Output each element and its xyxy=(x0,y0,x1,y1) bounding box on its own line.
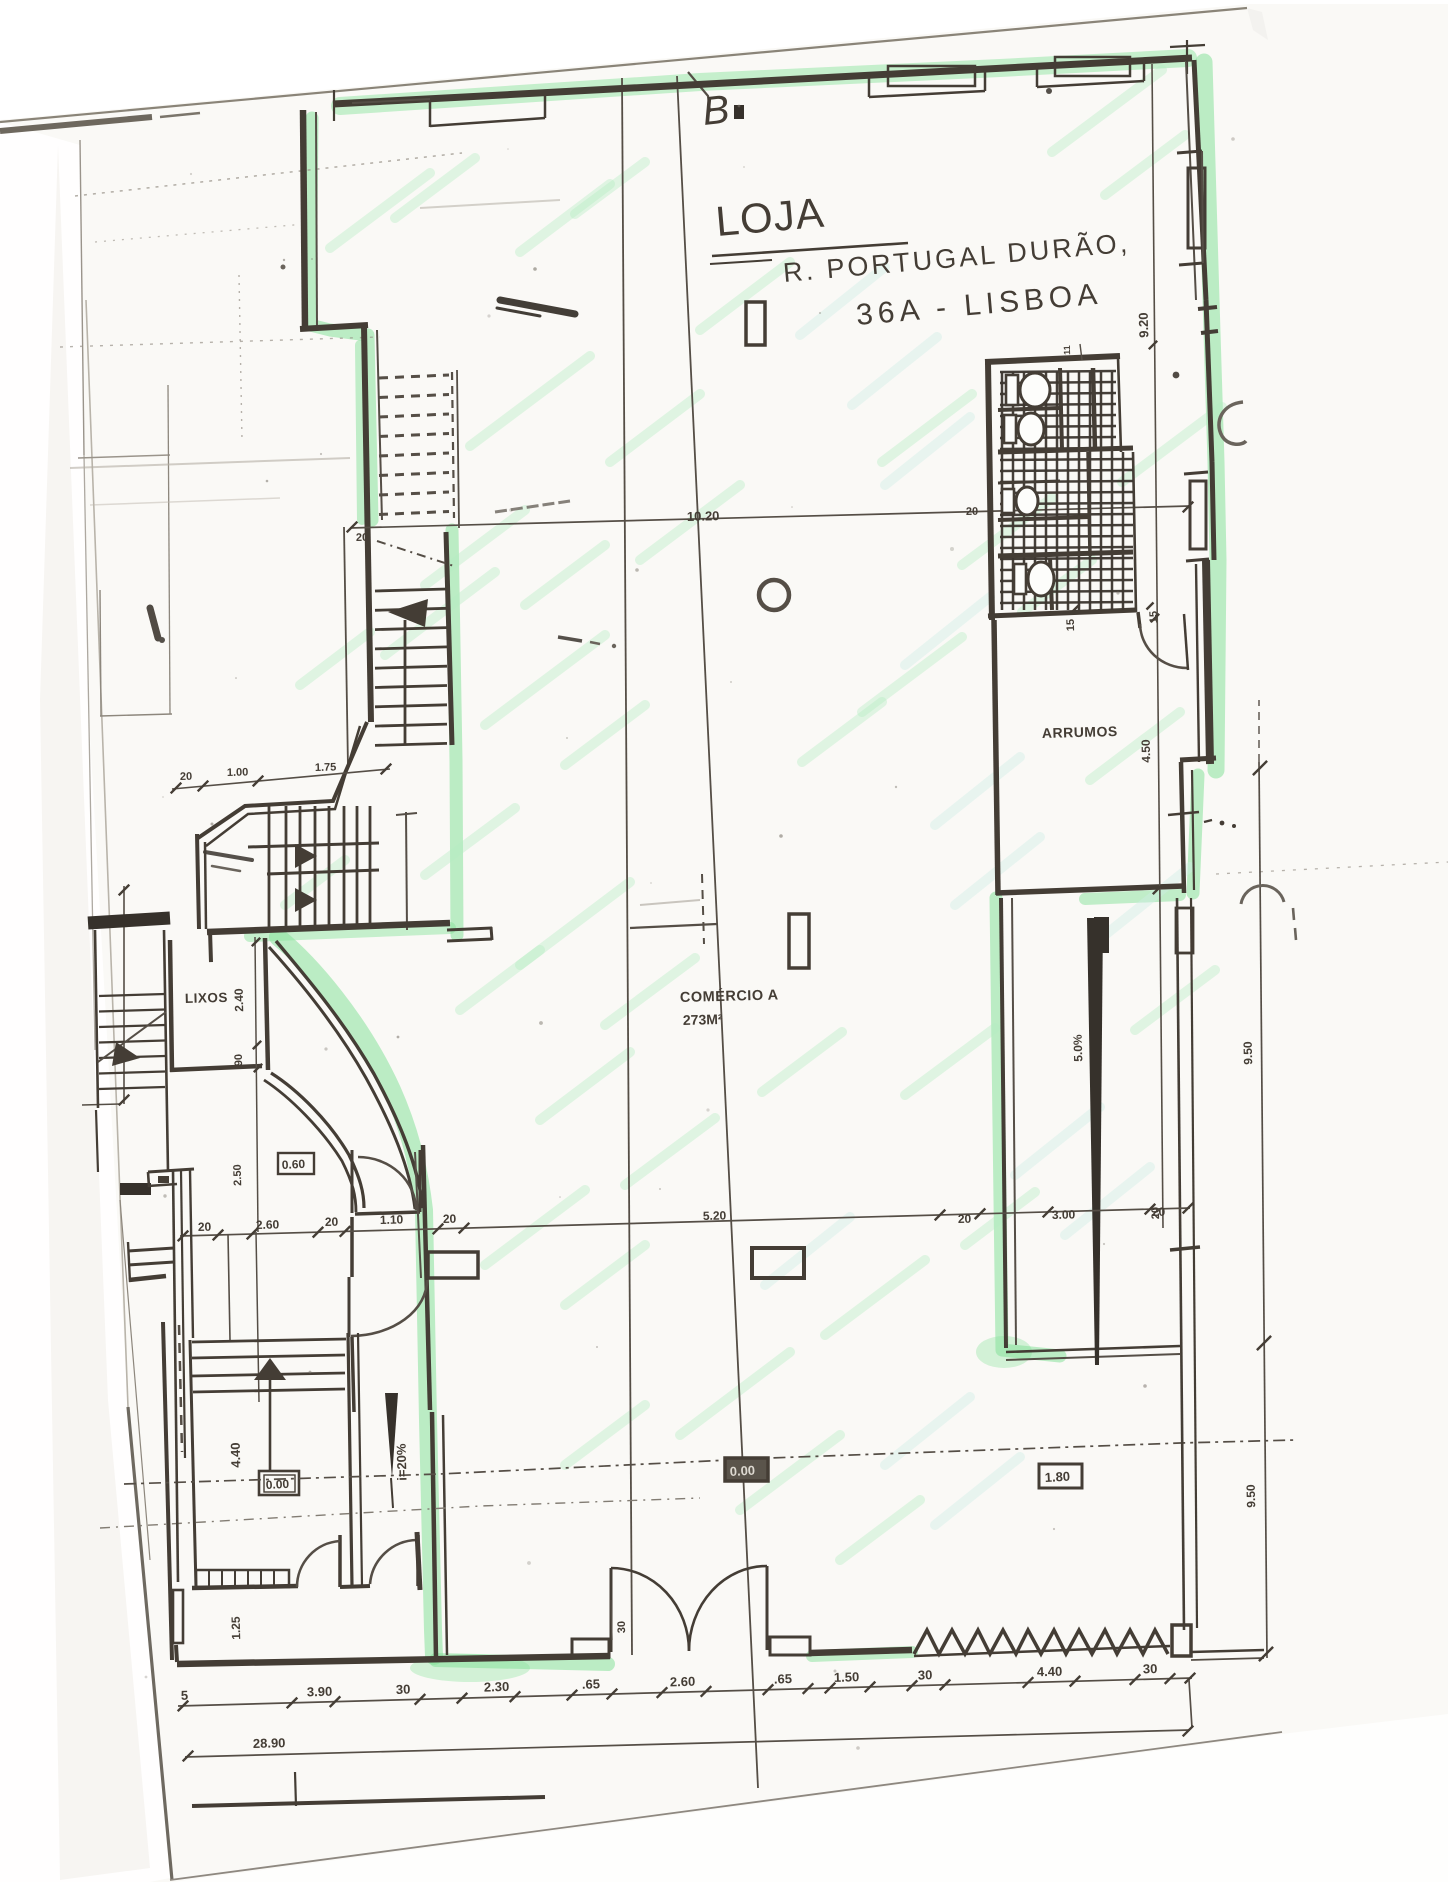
svg-text:9.50: 9.50 xyxy=(1241,1041,1256,1065)
svg-text:B: B xyxy=(700,87,731,134)
svg-text:LIXOS: LIXOS xyxy=(185,990,228,1006)
svg-text:0.00: 0.00 xyxy=(729,1463,755,1479)
svg-text:90: 90 xyxy=(233,1054,245,1067)
svg-text:1.10: 1.10 xyxy=(380,1212,404,1227)
svg-text:30: 30 xyxy=(616,1621,628,1634)
svg-text:4.50: 4.50 xyxy=(1139,739,1154,763)
svg-text:2.40: 2.40 xyxy=(232,988,247,1012)
svg-text:20: 20 xyxy=(1152,1205,1166,1219)
svg-text:11: 11 xyxy=(1062,345,1072,355)
svg-text:2.60: 2.60 xyxy=(256,1217,280,1232)
svg-text:15: 15 xyxy=(1148,611,1160,624)
svg-text:4.40: 4.40 xyxy=(1037,1664,1063,1680)
svg-text:.65: .65 xyxy=(582,1676,600,1691)
svg-text:9.20: 9.20 xyxy=(1136,312,1152,338)
svg-text:1.75: 1.75 xyxy=(315,761,337,774)
svg-text:20: 20 xyxy=(325,1215,339,1229)
svg-text:20: 20 xyxy=(443,1212,457,1226)
svg-text:.65: .65 xyxy=(774,1671,792,1686)
svg-text:30: 30 xyxy=(396,1682,411,1697)
svg-text:20: 20 xyxy=(966,506,979,518)
svg-text:9.50: 9.50 xyxy=(1244,1484,1259,1508)
svg-text:1.00: 1.00 xyxy=(227,766,249,779)
svg-text:20: 20 xyxy=(198,1220,212,1234)
svg-text:1.80: 1.80 xyxy=(1044,1469,1070,1485)
svg-text:ARRUMOS: ARRUMOS xyxy=(1042,723,1118,741)
svg-text:1.50: 1.50 xyxy=(834,1669,860,1685)
svg-text:20: 20 xyxy=(356,532,369,544)
svg-text:30: 30 xyxy=(1143,1661,1158,1676)
svg-text:1.25: 1.25 xyxy=(229,1616,244,1640)
svg-text:3.90: 3.90 xyxy=(307,1684,333,1700)
svg-text:15: 15 xyxy=(1065,619,1077,632)
svg-text:30: 30 xyxy=(918,1667,933,1682)
svg-text:28.90: 28.90 xyxy=(253,1735,286,1751)
svg-text:5.0%: 5.0% xyxy=(1071,1034,1086,1062)
svg-text:10.20: 10.20 xyxy=(687,508,720,524)
svg-text:LOJA: LOJA xyxy=(714,189,827,245)
svg-text:i=20%: i=20% xyxy=(394,1443,410,1481)
svg-text:3.00: 3.00 xyxy=(1052,1207,1076,1222)
svg-text:20: 20 xyxy=(958,1212,972,1226)
svg-text:2.60: 2.60 xyxy=(670,1674,696,1690)
svg-text:2.30: 2.30 xyxy=(484,1679,510,1695)
svg-text:4.40: 4.40 xyxy=(228,1442,244,1468)
svg-text:5: 5 xyxy=(181,1688,189,1703)
svg-text:0.60: 0.60 xyxy=(281,1157,305,1172)
svg-text:273M²: 273M² xyxy=(683,1011,723,1028)
svg-text:20: 20 xyxy=(180,771,193,783)
svg-text:5.20: 5.20 xyxy=(703,1208,727,1223)
svg-text:COMÉRCIO A: COMÉRCIO A xyxy=(680,986,779,1006)
svg-text:2.50: 2.50 xyxy=(232,1164,245,1186)
